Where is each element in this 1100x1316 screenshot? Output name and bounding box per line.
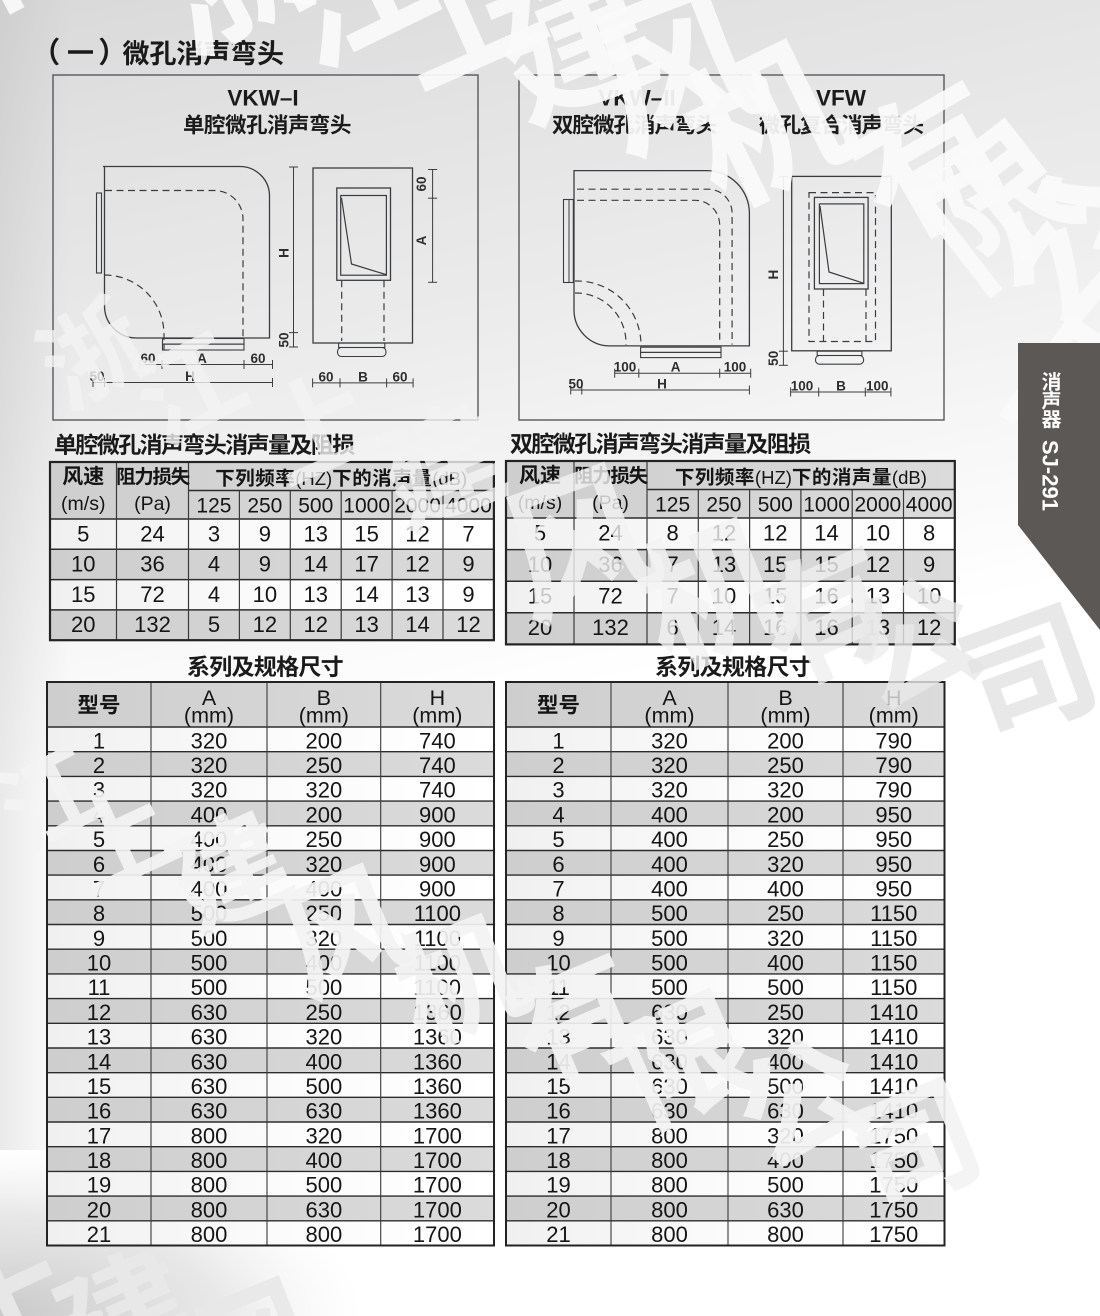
- svg-text:15: 15: [763, 552, 787, 577]
- svg-text:10: 10: [253, 582, 277, 607]
- svg-text:60: 60: [414, 176, 429, 191]
- svg-text:500: 500: [298, 495, 333, 518]
- svg-text:7: 7: [462, 521, 474, 546]
- svg-text:3: 3: [208, 521, 220, 546]
- svg-text:1000: 1000: [343, 495, 390, 518]
- svg-text:1700: 1700: [413, 1222, 462, 1247]
- svg-text:250: 250: [767, 901, 804, 926]
- svg-text:H: H: [766, 270, 781, 280]
- svg-text:250: 250: [706, 494, 741, 517]
- svg-text:9: 9: [552, 926, 564, 951]
- svg-text:10: 10: [71, 552, 95, 577]
- svg-text:900: 900: [419, 852, 456, 877]
- svg-text:14: 14: [405, 612, 429, 637]
- svg-text:200: 200: [305, 728, 342, 753]
- svg-text:50: 50: [277, 332, 292, 347]
- svg-text:14: 14: [87, 1049, 111, 1074]
- svg-text:21: 21: [546, 1222, 570, 1247]
- svg-text:60: 60: [318, 369, 333, 384]
- svg-text:132: 132: [592, 615, 629, 640]
- svg-text:20: 20: [71, 612, 95, 637]
- svg-text:500: 500: [651, 951, 688, 976]
- svg-text:1: 1: [552, 728, 564, 753]
- svg-text:500: 500: [758, 494, 793, 517]
- svg-text:2000: 2000: [854, 494, 901, 517]
- svg-text:17: 17: [354, 552, 378, 577]
- svg-text:630: 630: [767, 1197, 804, 1222]
- svg-text:320: 320: [651, 778, 688, 803]
- svg-text:500: 500: [305, 1074, 342, 1099]
- svg-text:1000: 1000: [803, 494, 850, 517]
- svg-text:(mm): (mm): [184, 704, 234, 728]
- svg-text:1360: 1360: [413, 1049, 462, 1074]
- svg-text:20: 20: [546, 1197, 570, 1222]
- svg-text:950: 950: [875, 876, 912, 901]
- svg-text:12: 12: [304, 612, 328, 637]
- svg-text:400: 400: [767, 951, 804, 976]
- svg-text:20: 20: [87, 1197, 111, 1222]
- svg-text:740: 740: [419, 753, 456, 778]
- svg-text:9: 9: [923, 552, 935, 577]
- svg-text:500: 500: [191, 975, 228, 1000]
- svg-text:13: 13: [354, 612, 378, 637]
- svg-text:1700: 1700: [413, 1197, 462, 1222]
- svg-text:9: 9: [93, 926, 105, 951]
- svg-text:800: 800: [191, 1148, 228, 1173]
- svg-text:H: H: [277, 248, 292, 258]
- svg-text:320: 320: [651, 728, 688, 753]
- svg-text:(mm): (mm): [644, 704, 694, 728]
- svg-text:13: 13: [304, 582, 328, 607]
- svg-text:4000: 4000: [906, 494, 953, 517]
- svg-text:630: 630: [305, 1099, 342, 1124]
- svg-text:19: 19: [87, 1173, 111, 1198]
- svg-text:8: 8: [93, 901, 105, 926]
- svg-text:19: 19: [546, 1173, 570, 1198]
- svg-text:A: A: [414, 235, 429, 245]
- svg-text:60: 60: [392, 369, 407, 384]
- svg-text:1360: 1360: [413, 1074, 462, 1099]
- svg-text:100: 100: [866, 379, 889, 394]
- svg-text:72: 72: [598, 584, 622, 609]
- svg-text:950: 950: [875, 827, 912, 852]
- svg-text:50: 50: [568, 377, 583, 392]
- svg-text:18: 18: [546, 1148, 570, 1173]
- svg-text:100: 100: [791, 379, 814, 394]
- svg-text:14: 14: [354, 582, 378, 607]
- svg-text:13: 13: [304, 521, 328, 546]
- svg-text:12: 12: [405, 552, 429, 577]
- svg-text:500: 500: [191, 951, 228, 976]
- svg-text:320: 320: [767, 778, 804, 803]
- svg-text:72: 72: [140, 582, 164, 607]
- svg-text:5: 5: [208, 612, 220, 637]
- svg-text:950: 950: [875, 852, 912, 877]
- svg-text:630: 630: [191, 1049, 228, 1074]
- svg-text:800: 800: [191, 1222, 228, 1247]
- svg-text:VFW: VFW: [816, 86, 867, 111]
- svg-text:200: 200: [767, 802, 804, 827]
- svg-text:9: 9: [259, 521, 271, 546]
- svg-text:18: 18: [87, 1148, 111, 1173]
- svg-text:11: 11: [88, 975, 111, 1000]
- svg-text:5: 5: [93, 827, 105, 852]
- svg-text:790: 790: [875, 753, 912, 778]
- svg-text:1410: 1410: [869, 1000, 918, 1025]
- svg-text:1700: 1700: [413, 1148, 462, 1173]
- svg-text:8: 8: [552, 901, 564, 926]
- svg-text:250: 250: [767, 753, 804, 778]
- svg-text:(mm): (mm): [299, 704, 349, 728]
- svg-text:800: 800: [651, 1197, 688, 1222]
- svg-text:12: 12: [866, 552, 890, 577]
- svg-text:(mm): (mm): [412, 704, 462, 728]
- svg-text:200: 200: [305, 802, 342, 827]
- svg-text:630: 630: [191, 1000, 228, 1025]
- svg-text:B: B: [358, 369, 368, 384]
- svg-text:320: 320: [767, 852, 804, 877]
- svg-text:50: 50: [766, 351, 781, 366]
- svg-text:36: 36: [140, 552, 164, 577]
- svg-text:9: 9: [462, 552, 474, 577]
- svg-text:12: 12: [253, 612, 277, 637]
- svg-text:125: 125: [196, 495, 231, 518]
- svg-text:400: 400: [651, 802, 688, 827]
- svg-text:132: 132: [134, 612, 171, 637]
- svg-text:800: 800: [651, 1222, 688, 1247]
- svg-text:630: 630: [191, 1074, 228, 1099]
- svg-text:790: 790: [875, 778, 912, 803]
- svg-text:900: 900: [419, 802, 456, 827]
- svg-text:1150: 1150: [870, 901, 917, 926]
- svg-text:400: 400: [767, 876, 804, 901]
- svg-text:1150: 1150: [870, 975, 917, 1000]
- svg-text:320: 320: [305, 1123, 342, 1148]
- svg-text:500: 500: [651, 926, 688, 951]
- svg-text:250: 250: [247, 495, 282, 518]
- svg-text:12: 12: [456, 612, 480, 637]
- svg-text:400: 400: [651, 876, 688, 901]
- svg-text:15: 15: [71, 582, 95, 607]
- svg-text:900: 900: [419, 876, 456, 901]
- svg-text:250: 250: [305, 753, 342, 778]
- svg-text:320: 320: [767, 926, 804, 951]
- svg-text:14: 14: [814, 520, 838, 545]
- svg-text:24: 24: [140, 521, 164, 546]
- svg-text:(HZ): (HZ): [755, 467, 792, 488]
- svg-text:2: 2: [552, 753, 564, 778]
- svg-text:250: 250: [767, 827, 804, 852]
- svg-text:VKW–I: VKW–I: [227, 86, 298, 111]
- svg-text:250: 250: [305, 827, 342, 852]
- svg-text:500: 500: [767, 1173, 804, 1198]
- svg-text:790: 790: [875, 728, 912, 753]
- svg-text:16: 16: [546, 1099, 570, 1124]
- svg-text:8: 8: [667, 520, 679, 545]
- svg-text:800: 800: [191, 1197, 228, 1222]
- svg-text:400: 400: [305, 1049, 342, 1074]
- svg-text:740: 740: [419, 728, 456, 753]
- svg-text:1700: 1700: [413, 1123, 462, 1148]
- svg-text:400: 400: [651, 852, 688, 877]
- svg-text:320: 320: [651, 753, 688, 778]
- svg-text:630: 630: [305, 1197, 342, 1222]
- svg-text:800: 800: [651, 1173, 688, 1198]
- svg-text:3: 3: [552, 778, 564, 803]
- svg-text:1150: 1150: [870, 926, 917, 951]
- svg-text:H: H: [657, 377, 667, 392]
- svg-text:13: 13: [87, 1025, 111, 1050]
- svg-text:800: 800: [767, 1222, 804, 1247]
- svg-text:400: 400: [651, 827, 688, 852]
- svg-text:1750: 1750: [869, 1222, 918, 1247]
- svg-text:14: 14: [304, 552, 328, 577]
- svg-text:B: B: [836, 379, 846, 394]
- svg-text:16: 16: [87, 1099, 111, 1124]
- svg-text:2: 2: [93, 753, 105, 778]
- svg-text:15: 15: [87, 1074, 111, 1099]
- svg-text:1410: 1410: [869, 1025, 918, 1050]
- svg-text:200: 200: [767, 728, 804, 753]
- svg-text:1410: 1410: [869, 1049, 918, 1074]
- svg-text:320: 320: [305, 778, 342, 803]
- svg-text:1: 1: [93, 728, 105, 753]
- svg-text:17: 17: [87, 1123, 111, 1148]
- svg-text:4: 4: [208, 582, 220, 607]
- svg-text:A: A: [671, 360, 681, 375]
- svg-text:(Pa): (Pa): [134, 493, 171, 515]
- svg-text:500: 500: [767, 975, 804, 1000]
- svg-text:7: 7: [552, 876, 564, 901]
- svg-text:10: 10: [866, 520, 890, 545]
- svg-text:320: 320: [305, 1025, 342, 1050]
- svg-text:1100: 1100: [414, 901, 461, 926]
- svg-text:15: 15: [354, 521, 378, 546]
- svg-text:250: 250: [305, 1000, 342, 1025]
- svg-text:(m/s): (m/s): [61, 493, 105, 515]
- svg-text:100: 100: [614, 360, 637, 375]
- svg-text:320: 320: [191, 728, 228, 753]
- svg-text:900: 900: [419, 827, 456, 852]
- svg-text:10: 10: [87, 951, 111, 976]
- svg-text:(dB): (dB): [892, 467, 927, 488]
- svg-text:12: 12: [763, 520, 787, 545]
- svg-text:6: 6: [552, 852, 564, 877]
- svg-text:4: 4: [552, 802, 564, 827]
- svg-text:950: 950: [875, 802, 912, 827]
- svg-text:SJ-291: SJ-291: [1038, 440, 1063, 511]
- svg-text:5: 5: [552, 827, 564, 852]
- svg-text:400: 400: [305, 1148, 342, 1173]
- svg-text:320: 320: [191, 753, 228, 778]
- svg-text:1150: 1150: [870, 951, 917, 976]
- svg-text:1700: 1700: [413, 1173, 462, 1198]
- svg-text:6: 6: [93, 852, 105, 877]
- svg-text:60: 60: [250, 351, 265, 366]
- svg-text:12: 12: [87, 1000, 111, 1025]
- svg-text:630: 630: [191, 1025, 228, 1050]
- svg-text:1360: 1360: [413, 1099, 462, 1124]
- svg-text:125: 125: [655, 494, 690, 517]
- svg-text:800: 800: [191, 1173, 228, 1198]
- svg-text:8: 8: [923, 520, 935, 545]
- svg-text:17: 17: [546, 1123, 570, 1148]
- svg-text:800: 800: [305, 1222, 342, 1247]
- svg-text:740: 740: [419, 778, 456, 803]
- svg-text:9: 9: [259, 552, 271, 577]
- svg-text:9: 9: [462, 582, 474, 607]
- svg-text:500: 500: [305, 1173, 342, 1198]
- svg-text:12: 12: [917, 615, 941, 640]
- svg-text:(mm): (mm): [760, 704, 810, 728]
- svg-text:800: 800: [651, 1148, 688, 1173]
- svg-text:21: 21: [87, 1222, 111, 1247]
- svg-text:630: 630: [191, 1099, 228, 1124]
- svg-text:5: 5: [77, 521, 89, 546]
- svg-text:250: 250: [767, 1000, 804, 1025]
- svg-text:13: 13: [405, 582, 429, 607]
- svg-text:100: 100: [724, 360, 747, 375]
- svg-text:500: 500: [651, 975, 688, 1000]
- svg-text:4: 4: [208, 552, 220, 577]
- svg-text:320: 320: [191, 778, 228, 803]
- svg-text:500: 500: [651, 901, 688, 926]
- svg-text:800: 800: [191, 1123, 228, 1148]
